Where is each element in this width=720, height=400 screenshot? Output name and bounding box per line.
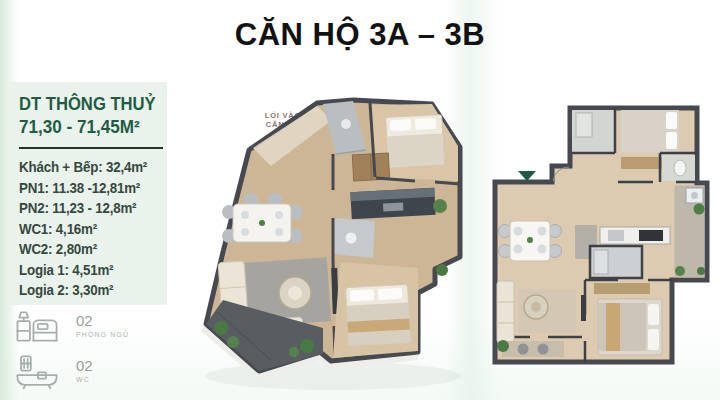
sofa-2d: [497, 281, 514, 343]
floorplan-poster: CĂN HỘ 3A – 3B DT THÔNG THUỶ 71,30 - 71,…: [0, 0, 720, 400]
specs-heading: DT THÔNG THUỶ: [19, 93, 160, 115]
bathroom-2-3d: [332, 218, 375, 258]
stat-wc: 02 WC: [13, 353, 129, 390]
bathtub-icon: [13, 353, 61, 390]
bedroom-count: 02: [76, 313, 129, 329]
specs-panel: DT THÔNG THUỶ 71,30 - 71,45M² Khách + Bế…: [8, 82, 167, 305]
coffee-table-3d: [279, 277, 311, 309]
tv-2d: [581, 295, 586, 321]
floorplan-2d-svg: [490, 83, 718, 368]
bedroom-label: PHÒNG NGỦ: [76, 330, 129, 340]
room-list: Khách + Bếp: 32,4m² PN1: 11.38 -12,81m² …: [19, 157, 167, 301]
entry-wardrobe: [352, 153, 389, 181]
room-area-item: Khách + Bếp: 32,4m²: [19, 157, 155, 178]
coffee-table-2d: [524, 295, 548, 319]
page-title: CĂN HỘ 3A – 3B: [0, 16, 720, 54]
loggia-1-2d: [497, 340, 564, 357]
area-range: 71,30 - 71,45M²: [19, 115, 160, 140]
unit-stats: 02 PHÒNG NGỦ 02 WC: [13, 308, 129, 390]
room-area-item: PN1: 11.38 -12,81m²: [19, 178, 155, 199]
room-area-item: Logia 2: 3,30m²: [19, 280, 155, 301]
room-area-item: WC1: 4,16m²: [19, 219, 155, 240]
floorplan-3d: [183, 88, 465, 396]
room-area-item: PN2: 11,23 - 12,8m²: [19, 198, 155, 219]
room-area-item: Logia 1: 4,51m²: [19, 260, 155, 281]
stat-bedrooms: 02 PHÒNG NGỦ: [13, 308, 129, 345]
stat-wc-meta: 02 WC: [76, 358, 93, 385]
wc-label: WC: [76, 375, 93, 385]
bathroom-right-2d: [662, 155, 695, 181]
bathroom-middle-2d: [592, 248, 641, 277]
stat-bedrooms-meta: 02 PHÒNG NGỦ: [76, 313, 129, 340]
floorplan-2d: [490, 83, 718, 368]
bedroom-2-3d: [333, 262, 418, 358]
loggia-2-2d: [675, 186, 706, 278]
divider: [19, 147, 163, 149]
floorplan-3d-svg: [183, 88, 465, 396]
room-area-item: WC2: 2,80m²: [19, 239, 155, 260]
wc-count: 02: [76, 358, 93, 374]
bed-icon: [13, 308, 61, 345]
bathroom-top-2d: [572, 110, 614, 152]
kitchen-island-3d: [350, 188, 435, 219]
